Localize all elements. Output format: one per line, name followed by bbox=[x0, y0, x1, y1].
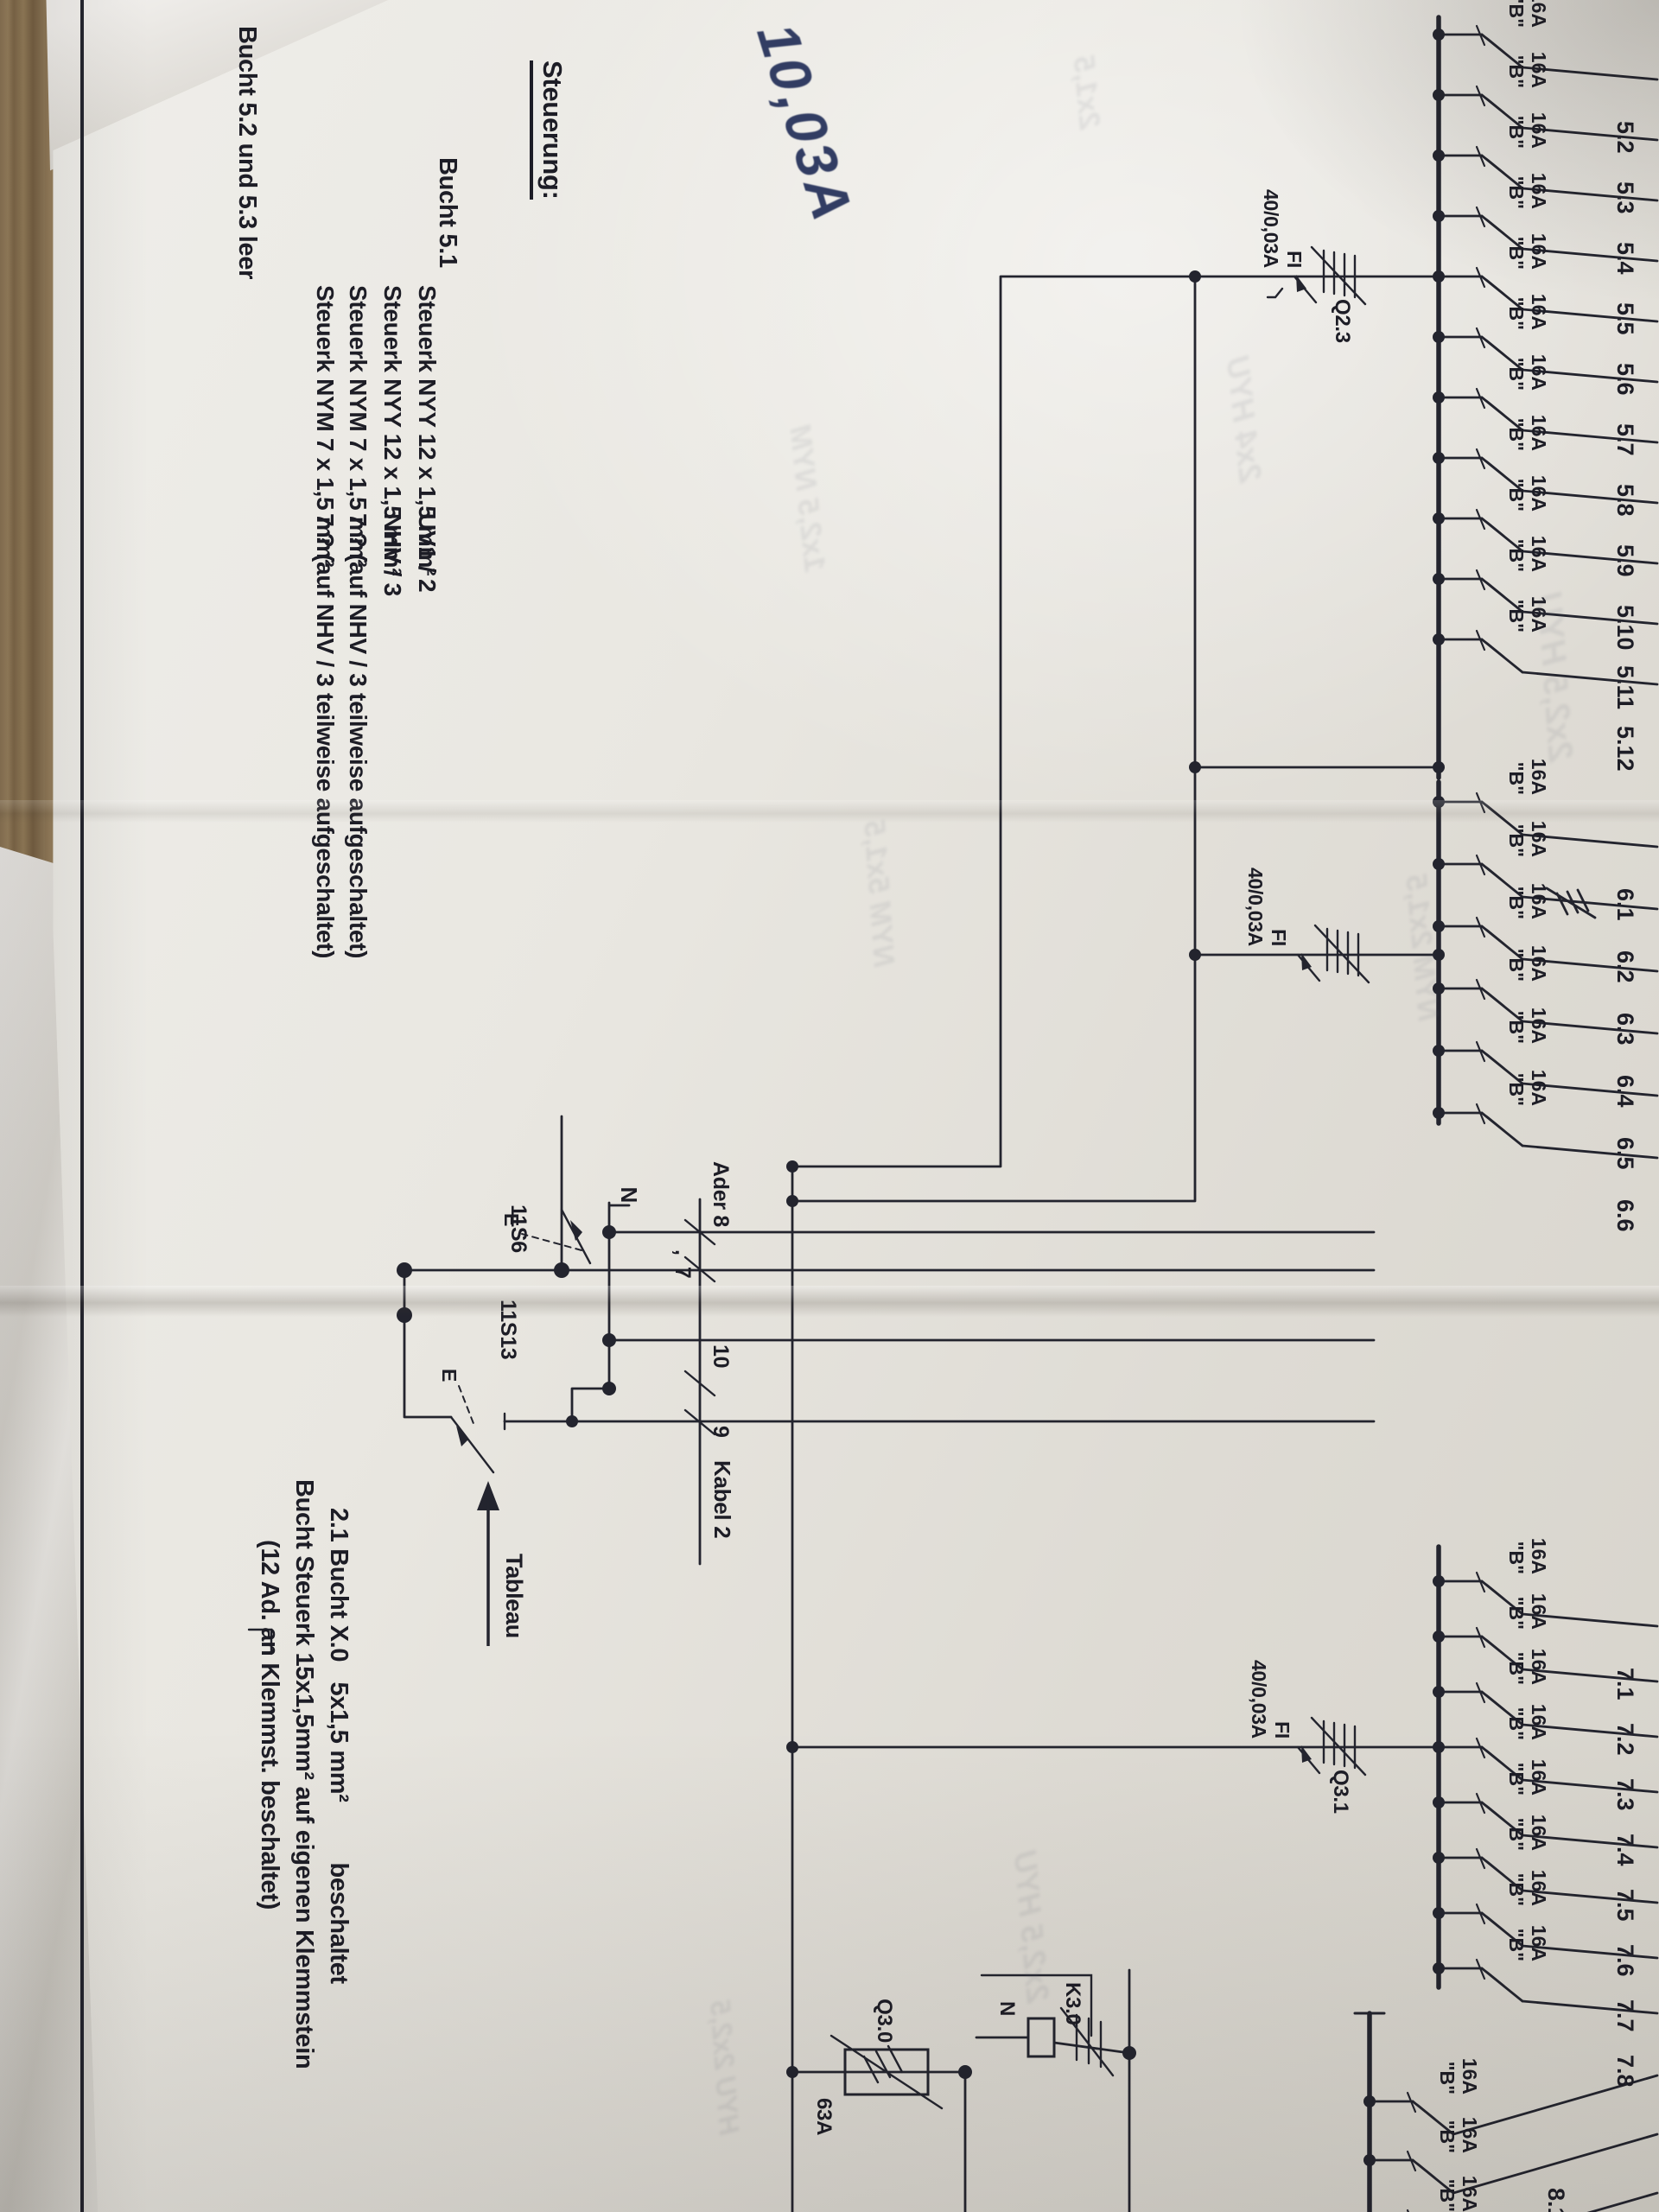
breaker-rating: 16A"B" bbox=[1504, 344, 1550, 391]
fi-rating-label: FI bbox=[1282, 138, 1305, 268]
legend-destination: UV1 / 2 bbox=[414, 513, 441, 592]
breaker-char: "B" bbox=[1504, 525, 1527, 572]
schematic-sheet-landscape: 10,03A Steuerung: Bucht 5.1 Steuerk NYY … bbox=[0, 0, 1659, 2212]
breaker-rating: 16A"B" bbox=[1504, 935, 1550, 982]
breaker-char: "B" bbox=[1435, 2165, 1458, 2212]
cable-name-label: Kabel 2 bbox=[709, 1460, 734, 1538]
fuse-label: Q3.0 bbox=[872, 1982, 895, 2043]
breaker-rating: 16A"B" bbox=[1504, 1804, 1550, 1851]
breaker-rating: 16A"B" bbox=[1504, 1528, 1550, 1574]
breaker-char: "B" bbox=[1504, 465, 1527, 512]
breaker-rating: 16A"B" bbox=[1504, 1915, 1550, 1961]
breaker-char: "B" bbox=[1504, 810, 1527, 857]
fi-rating-label: 40/0,03A bbox=[1243, 817, 1266, 946]
breaker-8.3: 16A"B" bbox=[1363, 2165, 1590, 2212]
breaker-rating: 16A"B" bbox=[1435, 2165, 1481, 2212]
fi-rating-label: 40/0,03A bbox=[1259, 138, 1281, 268]
fi-rating-label: FI bbox=[1270, 1609, 1293, 1738]
breaker-rating: 16A"B" bbox=[1504, 283, 1550, 330]
breaker-rating: 16A"B" bbox=[1504, 404, 1550, 451]
fi-rating-label: FI bbox=[1267, 817, 1289, 946]
breaker-rating: 16A"B" bbox=[1504, 0, 1550, 28]
breaker-rating: 16A"B" bbox=[1504, 997, 1550, 1044]
actuator-e1-label: E bbox=[499, 1213, 522, 1226]
breaker-rating: 16A"B" bbox=[1435, 2048, 1481, 2094]
cable-core-7-label: , 7 bbox=[671, 1249, 695, 1279]
cable-core-8-label: Ader 8 bbox=[709, 1141, 733, 1227]
breaker-char: "B" bbox=[1504, 1694, 1527, 1740]
breaker-char: "B" bbox=[1504, 997, 1527, 1044]
breaker-char: "B" bbox=[1435, 2107, 1458, 2153]
breaker-char: "B" bbox=[1504, 41, 1527, 88]
breaker-char: "B" bbox=[1504, 1804, 1527, 1851]
legend-footer: Bucht 5.2 und 5.3 leer bbox=[233, 26, 261, 279]
breaker-char: "B" bbox=[1504, 404, 1527, 451]
fuse-rating-label: 63A bbox=[811, 2098, 835, 2135]
breaker-rating: 16A"B" bbox=[1504, 223, 1550, 270]
breaker-rating: 16A"B" bbox=[1504, 41, 1550, 88]
legend-destination: 7 ? (auf NHV / 3 teilweise aufgeschaltet… bbox=[345, 513, 372, 958]
breaker-rating: 16A"B" bbox=[1504, 810, 1550, 857]
photo-of-schematic: 10,03A Steuerung: Bucht 5.1 Steuerk NYY … bbox=[0, 0, 1659, 2212]
breaker-rating: 16A"B" bbox=[1504, 1638, 1550, 1685]
cable-core-9-label: 9 bbox=[709, 1426, 733, 1438]
breaker-char: "B" bbox=[1504, 873, 1527, 919]
cable-core-10-label: 10 bbox=[709, 1344, 733, 1368]
neutral-label: N bbox=[616, 1168, 641, 1203]
breaker-rating: 16A"B" bbox=[1504, 1749, 1550, 1796]
note-line: Bucht Steuerk 15x1,5mm² auf eigenen Klem… bbox=[290, 1479, 318, 2069]
fi-device-label: Q2.3 bbox=[1330, 299, 1353, 343]
tableau-label: Tableau bbox=[501, 1554, 527, 1638]
note-line: (12 Ad. an Klemmst. beschaltet) bbox=[256, 1540, 283, 1910]
breaker-rating: 16A"B" bbox=[1504, 1694, 1550, 1740]
breaker-char: "B" bbox=[1504, 1638, 1527, 1685]
breaker-rating: 16A"B" bbox=[1504, 873, 1550, 919]
legend-destination: 7 ? (auf NHV / 3 teilweise aufgeschaltet… bbox=[312, 513, 339, 958]
breaker-char: "B" bbox=[1504, 162, 1527, 209]
note-line: 2.1 Bucht X.0 5x1,5 mm² beschaltet bbox=[325, 1508, 353, 1984]
breaker-char: "B" bbox=[1504, 344, 1527, 391]
wiring-diagram-lines bbox=[0, 0, 1659, 2212]
breaker-rating: 16A"B" bbox=[1504, 162, 1550, 209]
breaker-char: "B" bbox=[1504, 1528, 1527, 1574]
breaker-rating: 16A"B" bbox=[1435, 2107, 1481, 2153]
breaker-char: "B" bbox=[1504, 1059, 1527, 1106]
breaker-rating: 16A"B" bbox=[1504, 465, 1550, 512]
breaker-char: "B" bbox=[1504, 586, 1527, 632]
breaker-rating: 16A"B" bbox=[1504, 1583, 1550, 1630]
legend-destination: NHV / 3 bbox=[379, 513, 406, 596]
breaker-char: "B" bbox=[1504, 1915, 1527, 1961]
contactor-coil bbox=[1028, 2018, 1054, 2056]
actuator-e2-label: E bbox=[437, 1369, 460, 1382]
breaker-char: "B" bbox=[1504, 1859, 1527, 1906]
switch-11s13-label: 11S13 bbox=[496, 1300, 520, 1359]
breaker-char: "B" bbox=[1504, 1583, 1527, 1630]
breaker-char: "B" bbox=[1504, 283, 1527, 330]
breaker-7.8: 16A"B" bbox=[1433, 1915, 1659, 2066]
ghost-bleed-text: 2x1,5 bbox=[1066, 54, 1106, 130]
circuit-number: 7.8 bbox=[1611, 2055, 1638, 2088]
breaker-rating: 16A"B" bbox=[1504, 102, 1550, 149]
breaker-rating: 16A"B" bbox=[1504, 1859, 1550, 1906]
legend-title: Steuerung: bbox=[530, 60, 567, 200]
breaker-char: "B" bbox=[1435, 2048, 1458, 2094]
fi-device-label: Q3.1 bbox=[1328, 1770, 1351, 1814]
breaker-char: "B" bbox=[1504, 935, 1527, 982]
breaker-rating: 16A"B" bbox=[1504, 525, 1550, 572]
breaker-char: "B" bbox=[1504, 748, 1527, 795]
breaker-rating: 16A"B" bbox=[1504, 1059, 1550, 1106]
breaker-6.6: 16A"B" bbox=[1433, 1059, 1659, 1211]
breaker-char: "B" bbox=[1504, 223, 1527, 270]
breaker-char: "B" bbox=[1504, 0, 1527, 28]
circuit-number: 6.6 bbox=[1611, 1199, 1638, 1232]
switch-11s6-label: 11S6 bbox=[506, 1205, 531, 1253]
fi-rating-label: 40/0,03A bbox=[1247, 1609, 1269, 1738]
breaker-char: "B" bbox=[1504, 102, 1527, 149]
contactor-label: K3.0 bbox=[1060, 1982, 1084, 2025]
legend-bay: Bucht 5.1 bbox=[434, 157, 461, 268]
contactor-neutral-label: N bbox=[995, 2001, 1018, 2016]
breaker-char: "B" bbox=[1504, 1749, 1527, 1796]
